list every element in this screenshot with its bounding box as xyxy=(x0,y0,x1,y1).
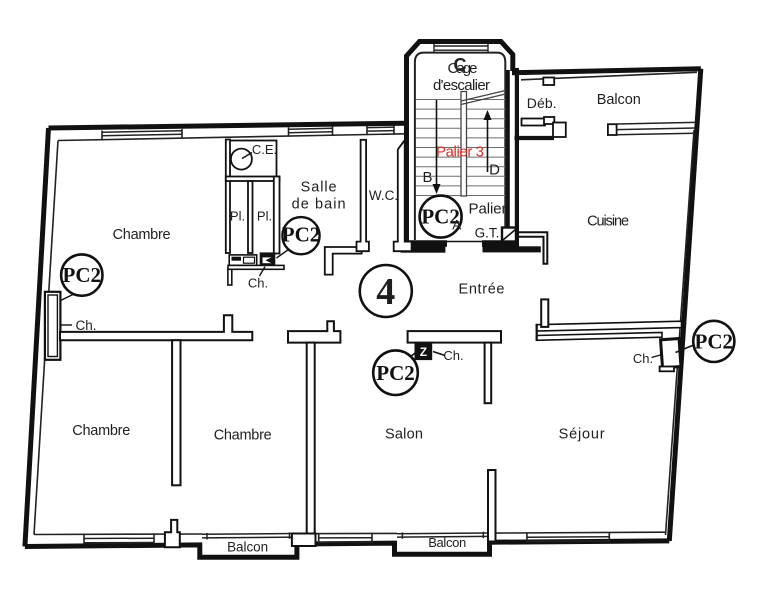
svg-text:Salon: Salon xyxy=(385,426,423,442)
svg-text:Pl.: Pl. xyxy=(257,209,272,224)
svg-text:PC2: PC2 xyxy=(376,361,415,385)
svg-text:Chambre: Chambre xyxy=(72,423,130,439)
svg-text:Chambre: Chambre xyxy=(214,428,272,444)
svg-text:Ch.: Ch. xyxy=(248,275,268,290)
svg-text:Z: Z xyxy=(420,345,427,359)
svg-text:4: 4 xyxy=(376,271,395,313)
svg-text:Balcon: Balcon xyxy=(227,540,268,555)
svg-text:Palier 3: Palier 3 xyxy=(436,144,484,161)
svg-text:PC2: PC2 xyxy=(63,263,102,287)
svg-text:D: D xyxy=(489,162,500,179)
svg-text:Salle: Salle xyxy=(301,179,337,195)
svg-text:PC2: PC2 xyxy=(282,223,321,247)
svg-text:Chambre: Chambre xyxy=(113,227,171,243)
svg-text:d'escalier: d'escalier xyxy=(433,77,490,94)
svg-text:W.C.: W.C. xyxy=(369,188,398,203)
svg-text:Pl.: Pl. xyxy=(230,209,245,224)
svg-text:Ch.: Ch. xyxy=(633,351,653,366)
svg-text:Ch.: Ch. xyxy=(443,348,463,363)
svg-text:Ch.: Ch. xyxy=(75,318,96,333)
svg-text:Entrée: Entrée xyxy=(459,281,505,297)
svg-text:Balcon: Balcon xyxy=(597,92,641,108)
svg-text:PC2: PC2 xyxy=(695,329,734,353)
svg-text:Balcon: Balcon xyxy=(428,535,466,550)
svg-text:C.E.: C.E. xyxy=(252,142,277,157)
svg-text:Palier: Palier xyxy=(469,201,507,218)
svg-text:Cuisine: Cuisine xyxy=(587,214,629,230)
svg-text:B: B xyxy=(422,169,432,186)
svg-text:C: C xyxy=(454,55,467,75)
svg-text:G.T.: G.T. xyxy=(475,226,500,241)
svg-text:A: A xyxy=(452,218,461,233)
svg-text:Déb.: Déb. xyxy=(527,95,557,111)
svg-text:Séjour: Séjour xyxy=(559,426,605,442)
